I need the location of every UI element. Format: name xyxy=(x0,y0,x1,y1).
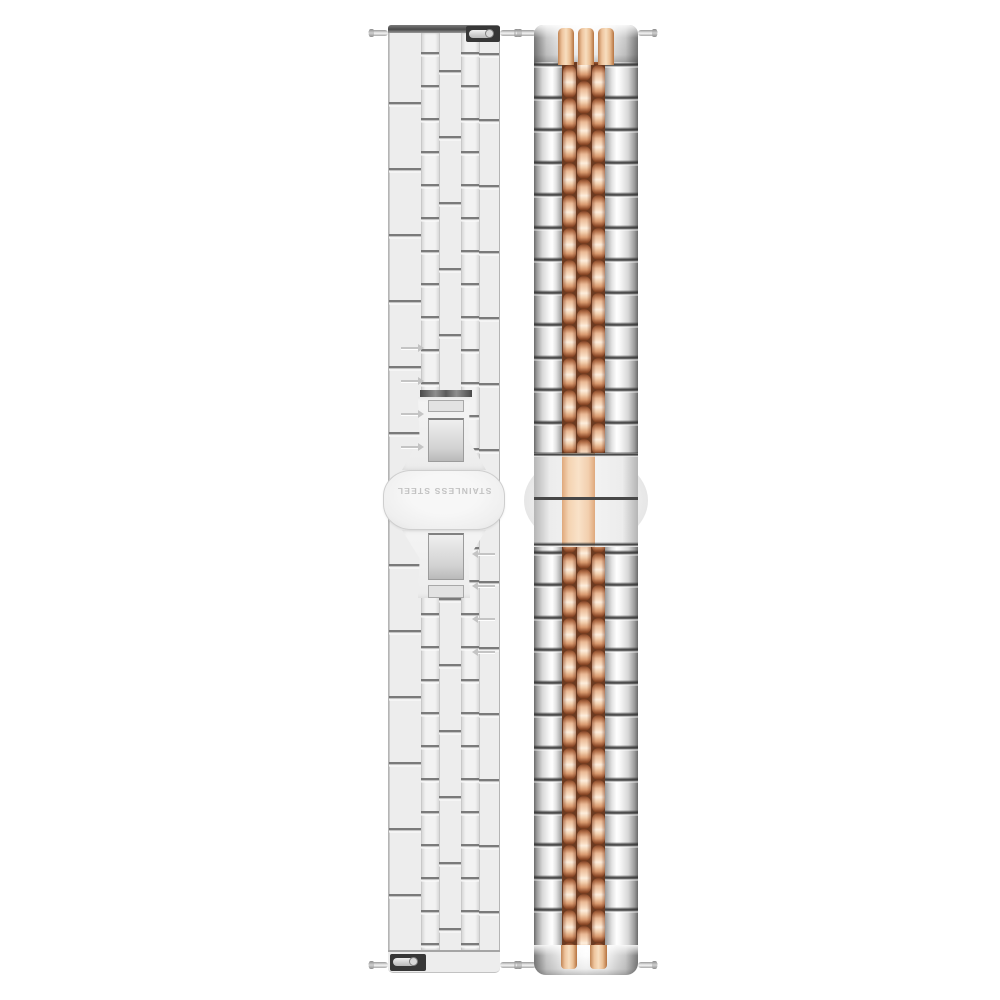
silver-link-groove xyxy=(605,127,638,133)
rose-gold-link xyxy=(577,731,591,764)
band-link-separator xyxy=(389,696,421,701)
band-link-separator xyxy=(461,778,479,783)
rose-gold-link xyxy=(577,276,591,309)
rose-gold-link xyxy=(563,878,577,911)
band-link-separator xyxy=(439,664,461,669)
band-link-separator xyxy=(439,730,461,735)
rose-gold-link xyxy=(563,715,577,748)
link-direction-arrow xyxy=(401,347,418,349)
clasp-groove-bottom xyxy=(534,542,638,547)
band-link-separator xyxy=(479,449,500,454)
band-link-separator xyxy=(421,283,439,288)
silver-link-groove xyxy=(534,225,562,231)
silver-link-groove xyxy=(605,95,638,101)
band-link-separator xyxy=(421,910,439,915)
rose-gold-link xyxy=(592,845,605,878)
spring-bar-pin-cap xyxy=(517,961,522,969)
rose-gold-link xyxy=(577,179,591,212)
silver-link-groove xyxy=(534,777,562,783)
band-link-separator xyxy=(389,630,421,635)
spring-bar-pin-cap xyxy=(369,961,374,969)
band-link-separator xyxy=(421,250,439,255)
band-link-separator xyxy=(421,778,439,783)
link-direction-arrow xyxy=(401,446,418,448)
silver-link-groove xyxy=(534,647,562,653)
rose-gold-link xyxy=(577,211,591,244)
silver-link-groove xyxy=(605,290,638,296)
band-link-separator xyxy=(461,349,479,354)
silver-link-groove xyxy=(534,95,562,101)
clasp-rose-gold-center-strip xyxy=(562,453,595,547)
silver-link-groove xyxy=(534,680,562,686)
silver-link-groove xyxy=(605,875,638,881)
band-link-separator xyxy=(421,52,439,57)
rose-gold-link xyxy=(592,585,605,618)
rose-gold-link xyxy=(563,390,577,423)
band-link-separator xyxy=(421,745,439,750)
rose-gold-link xyxy=(577,146,591,179)
band-link-separator xyxy=(389,300,421,305)
band-link-separator xyxy=(479,779,500,784)
silver-link-groove xyxy=(534,127,562,133)
silver-link-groove xyxy=(605,420,638,426)
rose-gold-link xyxy=(592,260,605,293)
band-link-separator xyxy=(461,85,479,90)
band-link-separator xyxy=(421,151,439,156)
rose-gold-link xyxy=(592,780,605,813)
silver-link-groove xyxy=(534,810,562,816)
rose-gold-link xyxy=(577,309,591,342)
band-link-separator xyxy=(461,679,479,684)
band-link-separator xyxy=(421,646,439,651)
band-link-separator xyxy=(461,283,479,288)
rose-gold-link xyxy=(577,406,591,439)
silver-link-groove xyxy=(534,192,562,198)
band-link-separator xyxy=(461,217,479,222)
link-direction-arrow xyxy=(478,553,495,555)
band-link-separator xyxy=(461,943,479,948)
rose-gold-link xyxy=(563,845,577,878)
band-link-separator xyxy=(461,712,479,717)
rose-gold-link xyxy=(577,796,591,829)
rose-gold-link xyxy=(563,910,577,943)
rose-gold-link xyxy=(592,358,605,391)
rose-gold-link xyxy=(577,244,591,277)
silver-link-groove xyxy=(534,290,562,296)
band-link-separator xyxy=(389,102,421,107)
silver-link-groove xyxy=(534,420,562,426)
band-link-separator xyxy=(461,910,479,915)
clasp-cover-plate xyxy=(383,470,505,530)
band-link-separator xyxy=(421,316,439,321)
silver-link-groove xyxy=(605,777,638,783)
silver-link-groove xyxy=(534,875,562,881)
silver-link-groove xyxy=(605,615,638,621)
band-link-separator xyxy=(479,251,500,256)
rose-gold-link xyxy=(592,618,605,651)
quick-release-slot-bottom xyxy=(390,954,426,971)
silver-link-groove xyxy=(534,582,562,588)
rose-gold-link xyxy=(577,699,591,732)
rose-gold-tongue xyxy=(558,28,574,65)
silver-link-groove xyxy=(605,550,638,556)
silver-link-groove xyxy=(605,582,638,588)
rose-gold-link xyxy=(592,878,605,911)
band-link-separator xyxy=(421,877,439,882)
band-link-separator xyxy=(389,432,421,437)
silver-link-groove xyxy=(605,712,638,718)
band-link-separator xyxy=(439,862,461,867)
silver-link-groove xyxy=(534,745,562,751)
spring-bar-pin xyxy=(516,30,536,36)
rose-gold-link xyxy=(577,569,591,602)
silver-link-groove xyxy=(605,907,638,913)
band-link-separator xyxy=(421,943,439,948)
rose-gold-link xyxy=(592,715,605,748)
rose-gold-link xyxy=(592,163,605,196)
band-link-separator xyxy=(479,845,500,850)
rose-gold-link xyxy=(563,260,577,293)
silver-link-groove xyxy=(605,745,638,751)
link-direction-arrow xyxy=(478,651,495,653)
rose-gold-link xyxy=(563,618,577,651)
band-link-separator xyxy=(421,679,439,684)
silver-link-groove xyxy=(605,225,638,231)
silver-link-groove xyxy=(534,355,562,361)
quick-release-knob xyxy=(485,29,494,38)
link-direction-arrow xyxy=(401,380,418,382)
band-link-separator xyxy=(461,877,479,882)
silver-link-groove xyxy=(605,387,638,393)
rose-gold-link xyxy=(592,195,605,228)
band-link-separator xyxy=(461,250,479,255)
band-link-separator xyxy=(421,85,439,90)
link-direction-arrow xyxy=(478,585,495,587)
rose-gold-link xyxy=(563,423,577,456)
silver-link-groove xyxy=(605,647,638,653)
band-link-separator xyxy=(421,118,439,123)
rose-gold-link xyxy=(563,748,577,781)
rose-gold-link xyxy=(563,585,577,618)
spring-bar-pin-cap xyxy=(369,29,374,37)
band-link-separator xyxy=(389,828,421,833)
silver-link-groove xyxy=(534,907,562,913)
band-link-separator xyxy=(479,53,500,58)
spring-bar-pin xyxy=(516,962,536,968)
rose-gold-link xyxy=(563,325,577,358)
band-link-separator xyxy=(389,762,421,767)
silver-link-groove xyxy=(534,160,562,166)
band-link-separator xyxy=(389,564,421,569)
band-link-separator xyxy=(479,185,500,190)
clasp-cutout-small-bottom xyxy=(428,585,464,598)
rose-gold-link xyxy=(577,764,591,797)
rose-gold-link xyxy=(577,341,591,374)
band-link-separator xyxy=(439,928,461,933)
band-link-separator xyxy=(439,268,461,273)
spring-bar-pin xyxy=(638,30,658,36)
silver-link-groove xyxy=(605,257,638,263)
rose-gold-link xyxy=(592,813,605,846)
band-link-separator xyxy=(439,334,461,339)
rose-gold-link xyxy=(563,130,577,163)
clasp-cutout-large-bottom xyxy=(428,533,464,580)
band-link-separator xyxy=(461,52,479,57)
clasp-seam-line xyxy=(534,497,638,500)
band-link-separator xyxy=(479,911,500,916)
silver-link-groove xyxy=(605,160,638,166)
watch-band-two-tone xyxy=(534,25,638,975)
spring-bar-pin xyxy=(368,962,388,968)
spring-bar-pin xyxy=(638,962,658,968)
rose-gold-link xyxy=(592,390,605,423)
rose-gold-link xyxy=(577,81,591,114)
silver-link-groove xyxy=(605,842,638,848)
rose-gold-link xyxy=(577,601,591,634)
rose-gold-link xyxy=(577,114,591,147)
band-link-separator xyxy=(389,366,421,371)
rose-gold-link xyxy=(563,813,577,846)
band-link-separator xyxy=(461,844,479,849)
rose-gold-link xyxy=(563,98,577,131)
band-link-separator xyxy=(461,118,479,123)
rose-gold-link xyxy=(577,634,591,667)
rose-gold-link xyxy=(592,228,605,261)
band-link-separator xyxy=(421,844,439,849)
rose-gold-link xyxy=(563,163,577,196)
rose-gold-link xyxy=(592,98,605,131)
band-link-separator xyxy=(439,796,461,801)
link-direction-arrow xyxy=(478,618,495,620)
rose-gold-link xyxy=(592,748,605,781)
silver-link-groove xyxy=(534,842,562,848)
band-link-separator xyxy=(461,151,479,156)
band-link-separator xyxy=(389,168,421,173)
spring-bar-pin-cap xyxy=(652,29,657,37)
watch-band-silver: STAINLESS STEEL xyxy=(388,25,500,975)
clasp-cutout-small-top xyxy=(428,400,464,412)
rose-gold-tongue xyxy=(561,945,577,969)
rose-gold-link xyxy=(592,683,605,716)
rose-gold-link xyxy=(577,894,591,927)
rose-gold-link xyxy=(577,666,591,699)
band-link-separator xyxy=(461,382,479,387)
band-link-separator xyxy=(479,317,500,322)
band-link-separator xyxy=(421,712,439,717)
silver-link-groove xyxy=(605,322,638,328)
rose-gold-link xyxy=(592,65,605,98)
band-link-separator xyxy=(421,613,439,618)
spring-bar-pin xyxy=(368,30,388,36)
band-link-separator xyxy=(479,713,500,718)
clasp-groove-top xyxy=(534,452,638,457)
spring-bar-pin-cap xyxy=(517,29,522,37)
rose-gold-tongue xyxy=(598,28,614,65)
band-link-separator xyxy=(439,598,461,603)
rose-gold-link xyxy=(577,861,591,894)
clasp-cutout-large-top xyxy=(428,418,464,462)
rose-gold-link xyxy=(592,423,605,456)
band-link-separator xyxy=(479,383,500,388)
rose-gold-link xyxy=(563,228,577,261)
clasp-engraving-text: STAINLESS STEEL xyxy=(383,486,505,496)
band-link-separator xyxy=(389,234,421,239)
rose-gold-link xyxy=(577,926,591,945)
clasp-hinge-top xyxy=(420,390,472,397)
rose-gold-link xyxy=(563,65,577,98)
rose-gold-link xyxy=(563,683,577,716)
link-direction-arrow xyxy=(401,413,418,415)
rose-gold-link xyxy=(563,780,577,813)
band-link-separator xyxy=(421,811,439,816)
band-link-separator xyxy=(439,202,461,207)
rose-gold-link xyxy=(563,195,577,228)
silver-link-groove xyxy=(605,810,638,816)
quick-release-slot-top xyxy=(466,26,500,42)
rose-gold-link xyxy=(563,293,577,326)
silver-link-groove xyxy=(534,615,562,621)
band-link-separator xyxy=(461,316,479,321)
band-link-separator xyxy=(439,70,461,75)
silver-link-groove xyxy=(534,257,562,263)
band-link-separator xyxy=(439,136,461,141)
rose-gold-link xyxy=(577,374,591,407)
band-link-separator xyxy=(389,894,421,899)
band-link-separator xyxy=(461,745,479,750)
silver-link-groove xyxy=(534,712,562,718)
rose-gold-link xyxy=(563,553,577,586)
rose-gold-tongue xyxy=(590,945,607,969)
band-link-separator xyxy=(479,119,500,124)
rose-gold-link xyxy=(592,130,605,163)
product-photo-scene: STAINLESS STEEL xyxy=(0,0,1000,1000)
band-link-separator xyxy=(421,217,439,222)
rose-gold-link xyxy=(592,325,605,358)
rose-gold-tongue xyxy=(578,28,594,65)
band-link-separator xyxy=(461,184,479,189)
rose-gold-link xyxy=(592,293,605,326)
rose-gold-link xyxy=(563,358,577,391)
two-tone-bottom-end-link xyxy=(534,945,638,975)
band-link-separator xyxy=(461,811,479,816)
silver-link-groove xyxy=(534,387,562,393)
silver-link-groove xyxy=(605,355,638,361)
silver-link-groove xyxy=(605,192,638,198)
silver-link-groove xyxy=(605,680,638,686)
rose-gold-link xyxy=(577,829,591,862)
band-link-separator xyxy=(421,184,439,189)
silver-link-groove xyxy=(534,550,562,556)
silver-link-groove xyxy=(534,322,562,328)
rose-gold-link xyxy=(563,650,577,683)
quick-release-knob xyxy=(409,957,418,966)
rose-gold-link xyxy=(592,910,605,943)
rose-gold-link xyxy=(592,553,605,586)
spring-bar-pin-cap xyxy=(652,961,657,969)
rose-gold-link xyxy=(592,650,605,683)
